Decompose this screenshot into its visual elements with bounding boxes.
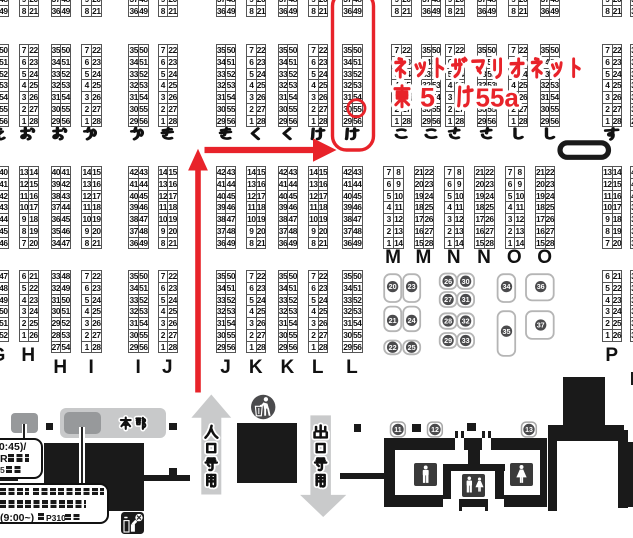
svg-text:29: 29	[444, 336, 452, 345]
svg-text:26: 26	[444, 277, 452, 286]
svg-text:20: 20	[389, 282, 397, 291]
svg-text:12: 12	[431, 427, 439, 434]
svg-text:27: 27	[444, 295, 452, 304]
svg-text:11: 11	[394, 427, 402, 434]
svg-text:32: 32	[462, 317, 470, 326]
svg-text:37: 37	[537, 321, 545, 330]
svg-text:55a: 55a	[476, 83, 520, 113]
svg-text:13: 13	[525, 427, 533, 434]
svg-text:33: 33	[462, 336, 470, 345]
svg-text:28: 28	[444, 317, 452, 326]
svg-text:21: 21	[389, 316, 397, 325]
svg-text:24: 24	[408, 316, 416, 325]
svg-text:22: 22	[389, 343, 397, 352]
svg-text:5: 5	[420, 83, 435, 113]
svg-text:25: 25	[408, 343, 416, 352]
svg-text:31: 31	[462, 295, 470, 304]
svg-text:36: 36	[537, 282, 545, 291]
svg-text:23: 23	[408, 282, 416, 291]
svg-text:30: 30	[462, 277, 470, 286]
svg-text:35: 35	[503, 327, 511, 336]
svg-text:34: 34	[503, 282, 511, 291]
